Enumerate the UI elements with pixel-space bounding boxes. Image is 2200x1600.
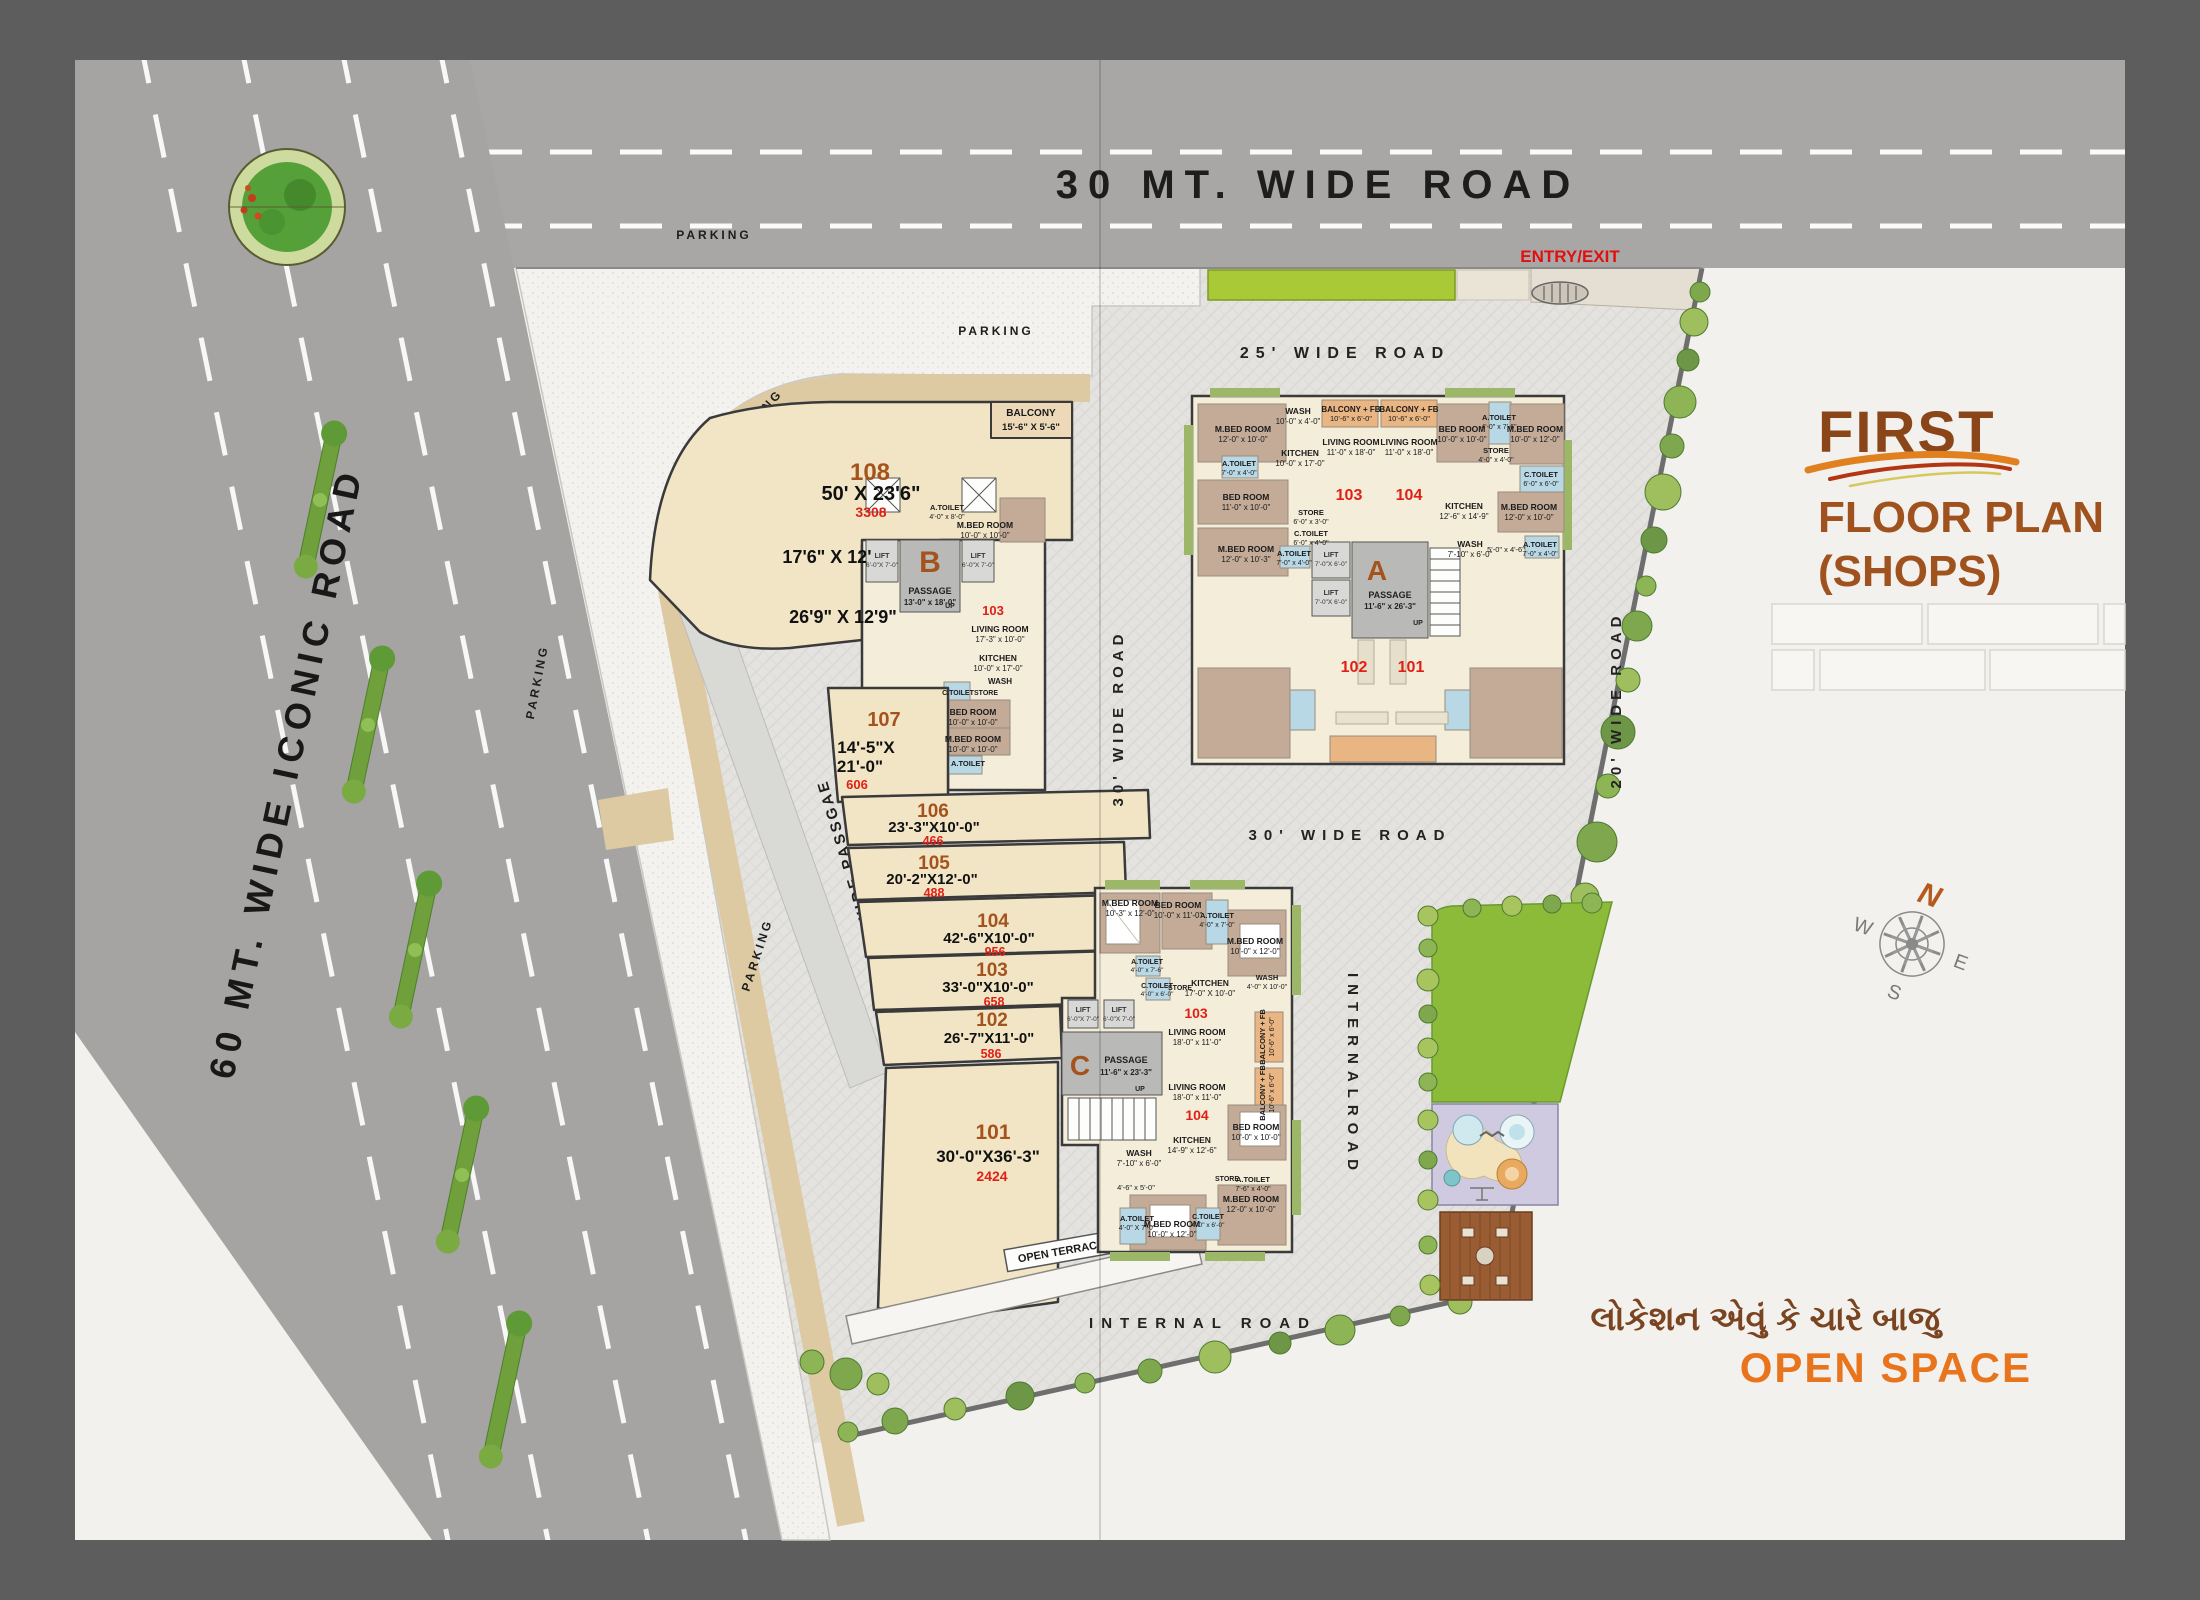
room-label: C.TOILET <box>1524 470 1558 479</box>
shop-106-area: 466 <box>923 834 944 848</box>
room-dim: 6'-0" x 3'-0" <box>1293 519 1329 526</box>
room-dim: 10'-0" x 10'-0" <box>960 531 1009 540</box>
room-label: BALCONY + FB <box>1379 405 1438 414</box>
room-label: LIVING ROOM <box>1168 1027 1225 1037</box>
shop-108-dim: 50' X 23'6" <box>821 483 920 505</box>
b-unit-103: 103 <box>982 603 1004 618</box>
room-dim: 10'-0" x 10'-0" <box>948 745 997 754</box>
c-unit-104: 104 <box>1185 1107 1209 1123</box>
shop-101-dim: 30'-0"X36'-3" <box>936 1147 1040 1166</box>
tagline-open-space: OPEN SPACE <box>1740 1344 2032 1391</box>
room-label: WASH <box>1285 406 1311 416</box>
road-30h-label: 30' WIDE ROAD <box>1249 827 1452 844</box>
pale-strip <box>1457 270 1529 300</box>
room-dim: 10'-0" x 17'-0" <box>1275 459 1324 468</box>
room-label: BED ROOM <box>1233 1122 1280 1132</box>
a-room-fill <box>1198 480 1288 524</box>
a-sofa <box>1336 712 1388 724</box>
a-toilet-fill <box>1290 690 1315 730</box>
room-label: KITCHEN <box>1445 501 1483 511</box>
room-label: C.TOILET <box>1294 529 1328 538</box>
room-label: M.BED ROOM <box>1102 898 1158 908</box>
site-plan-page: 30 MT. WIDE ROAD <box>0 0 2200 1600</box>
room-label: STORE <box>1168 985 1192 992</box>
room-dim: 4'-0" X 10'-0" <box>1247 984 1288 991</box>
shop-107-dim2: 21'-0" <box>837 757 883 776</box>
shop-102-area: 586 <box>981 1047 1002 1061</box>
room-dim: 4'-0" x 8'-0" <box>929 514 965 521</box>
room-dim: 12'-0" x 10'-3" <box>1221 555 1270 564</box>
room-label: M.BED ROOM <box>1501 502 1557 512</box>
room-label: A.TOILET <box>1236 1175 1270 1184</box>
a-up-label: UP <box>1413 620 1423 627</box>
room-dim: 4'-0" x 4'-0" <box>1478 457 1514 464</box>
b-lift1-dim: 6'-0"X 7'-0" <box>866 562 899 569</box>
room-dim: 12'-0" x 10'-0" <box>1504 513 1553 522</box>
room-dim: 12'-6" x 14'-9" <box>1439 512 1488 521</box>
shop-107-number: 107 <box>867 709 900 731</box>
road-20-label: 20' WIDE ROAD <box>1608 612 1625 789</box>
room-dim: 12'-0" x 10'-0" <box>1218 435 1267 444</box>
b-lift1-label: LIFT <box>875 553 890 560</box>
room-dim: 4'-0" x 6'-0" <box>1192 1222 1225 1229</box>
room-dim: 10'-0" x 12'-0" <box>1230 947 1279 956</box>
room-dim: 10'-0" x 12'-0" <box>1147 1230 1196 1239</box>
room-label: A.TOILET <box>951 759 985 768</box>
room-label: M.BED ROOM <box>1218 544 1274 554</box>
shop-108-number: 108 <box>850 459 890 486</box>
tagline-gujarati: લોકેશન એવું કે ચારે બાજુ <box>1591 1298 1944 1340</box>
lawn-strip <box>1208 270 1455 300</box>
room-label: STORE <box>974 690 998 697</box>
c-green-strip <box>1292 905 1301 995</box>
a-passage-label: PASSAGE <box>1368 590 1411 600</box>
shop-108-dim-b: 26'9" X 12'9" <box>789 607 897 627</box>
a-toilet-fill <box>1489 402 1511 444</box>
block-c-letter: C <box>1070 1050 1090 1081</box>
internal-road-h-label: INTERNAL ROAD <box>1089 1315 1317 1332</box>
room-dim: 14'-9" x 12'-6" <box>1167 1146 1216 1155</box>
room-label: M.BED ROOM <box>957 520 1013 530</box>
room-dim: 7'-6" x 4'-0" <box>1235 1186 1271 1193</box>
room-dim: 7'-10" x 6'-0" <box>1117 1159 1162 1168</box>
room-label: STORE <box>1298 508 1324 517</box>
c-lift1-label: LIFT <box>1076 1007 1091 1014</box>
room-dim: 11'-0" x 10'-0" <box>1222 503 1271 512</box>
room-label: A.TOILET <box>1523 540 1557 549</box>
c-up-label: UP <box>1135 1086 1145 1093</box>
room-label: M.BED ROOM <box>945 734 1001 744</box>
room-dim: 10'-0" x 17'-0" <box>973 664 1022 673</box>
room-label: WASH <box>1457 539 1483 549</box>
block-a-letter: A <box>1367 555 1387 586</box>
c-passage-label: PASSAGE <box>1104 1055 1147 1065</box>
a-lift2-dim: 7'-0"X 6'-0" <box>1315 599 1348 606</box>
room-dim: 7'-10" x 6'-0" <box>1448 550 1493 559</box>
a-unit-101: 101 <box>1398 659 1425 676</box>
room-dim: 6'-0" x 4'-0" <box>1293 540 1329 547</box>
room-dim: 10'-0" x 10'-0" <box>1231 1133 1280 1142</box>
a-lift1-dim: 7'-0"X 6'-0" <box>1315 561 1348 568</box>
entry-exit-label: ENTRY/EXIT <box>1520 247 1620 266</box>
a-green-strip-top2 <box>1445 388 1515 397</box>
room-label: A.TOILET <box>930 503 964 512</box>
a-balcony-bottom <box>1330 736 1436 762</box>
room-dim: 18'-0" x 11'-0" <box>1173 1093 1222 1102</box>
shop-104-number: 104 <box>977 911 1009 932</box>
shop-101-area: 2424 <box>976 1168 1007 1184</box>
balcony-dim: 15'-6" X 5'-6" <box>1002 422 1060 433</box>
c-green-strip <box>1110 1252 1170 1261</box>
a-green-strip-top1 <box>1210 388 1280 397</box>
room-dim: 7'-0" x 4'-0" <box>1276 560 1312 567</box>
shop-102-dim: 26'-7"X11'-0" <box>944 1030 1035 1047</box>
room-label: WASH <box>1126 1148 1152 1158</box>
room-dim: 5'-0" x 4'-6" <box>1487 545 1525 554</box>
shop-105-area: 488 <box>924 886 945 900</box>
parking-label-1: PARKING <box>676 228 751 242</box>
room-dim: 10'-0" x 12'-0" <box>1510 435 1559 444</box>
shop-103-number: 103 <box>976 960 1008 981</box>
c-lift1-dim: 6'-0"X 7'-0" <box>1067 1016 1100 1023</box>
room-label: C.TOILET <box>942 690 974 697</box>
garden-deck <box>1440 1212 1532 1300</box>
b-lift2-label: LIFT <box>971 553 986 560</box>
room-label: LIVING ROOM <box>1168 1082 1225 1092</box>
room-dim: 11'-0" x 18'-0" <box>1385 448 1434 457</box>
room-label: KITCHEN <box>979 653 1017 663</box>
room-label: M.BED ROOM <box>1507 424 1563 434</box>
c-lift2-label: LIFT <box>1112 1007 1127 1014</box>
room-dim: 10'-6" x 6'-0" <box>1388 414 1430 423</box>
room-dim: 10'-0" x 10'-0" <box>948 718 997 727</box>
room-label: STORE <box>1483 446 1509 455</box>
a-lift-2 <box>1312 580 1350 616</box>
room-dim: 7'-0" x 4'-0" <box>1221 470 1257 477</box>
shop-107-dim: 14'-5"X <box>837 738 895 757</box>
c-green-strip <box>1190 880 1245 889</box>
room-label: BED ROOM <box>1439 424 1486 434</box>
a-room-fill <box>1498 492 1564 532</box>
a-unit-104: 104 <box>1396 487 1423 504</box>
room-dim: 10'-6" x 6'-0" <box>1269 1017 1276 1057</box>
room-label: BED ROOM <box>1223 492 1270 502</box>
room-dim: 4'-0" x 7'-6" <box>1131 967 1164 974</box>
a-lift1-label: LIFT <box>1324 552 1339 559</box>
shop-104-area: 956 <box>985 945 1006 959</box>
shop-108-dim-a: 17'6" X 12' <box>782 547 871 567</box>
room-label: A.TOILET <box>1277 549 1311 558</box>
room-label: BED ROOM <box>950 707 997 717</box>
room-dim: 11'-0" x 18'-0" <box>1327 448 1376 457</box>
room-label: WASH <box>988 677 1012 686</box>
block-b-letter: B <box>919 546 941 579</box>
room-dim: 10'-0" x 11'-0" <box>1154 911 1203 920</box>
b-lift-2 <box>962 540 994 582</box>
room-label: BALCONY + FB <box>1258 1065 1267 1121</box>
shop-102-number: 102 <box>976 1010 1008 1031</box>
room-dim: 7'-0" x 4'-0" <box>1522 551 1558 558</box>
room-dim: 4'-0" x 6'-0" <box>1141 991 1174 998</box>
b-passage-label: PASSAGE <box>908 586 951 596</box>
room-label: WASH <box>1256 973 1279 982</box>
a-green-strip-left <box>1184 425 1193 555</box>
internal-road-v-label: INTERNALROAD <box>1344 973 1361 1177</box>
a-unit-103: 103 <box>1336 487 1363 504</box>
a-toilet-fill <box>1445 690 1470 730</box>
room-label: LIVING ROOM <box>1380 437 1437 447</box>
room-label: BED ROOM <box>1155 900 1202 910</box>
room-label: M.BED ROOM <box>1223 1194 1279 1204</box>
a-lift-1 <box>1312 542 1350 578</box>
c-lift2-dim: 6'-0"X 7'-0" <box>1103 1016 1136 1023</box>
room-label: A.TOILET <box>1131 959 1163 966</box>
shop-103-dim: 33'-0"X10'-0" <box>942 979 1033 996</box>
parking-label-2: PARKING <box>958 324 1033 338</box>
c-green-strip <box>1205 1252 1265 1261</box>
balcony-label: BALCONY <box>1006 408 1056 419</box>
room-dim: 4'-0" x 7'-0" <box>1199 922 1235 929</box>
a-unit-102: 102 <box>1341 659 1368 676</box>
shop-103-area: 658 <box>984 995 1005 1009</box>
c-green-strip <box>1105 880 1160 889</box>
shop-107-area: 606 <box>846 777 868 792</box>
road-25-label: 25' WIDE ROAD <box>1240 345 1450 362</box>
room-dim: 17'-0" X 10'-0" <box>1185 989 1236 998</box>
room-label: C.TOILET <box>1192 1214 1224 1221</box>
c-passage-dim: 11'-6" x 23'-3" <box>1100 1068 1152 1077</box>
b-lift2-dim: 6'-0"X 7'-0" <box>962 562 995 569</box>
shop-108-area: 3308 <box>855 504 886 520</box>
room-dim: 10'-6" x 6'-0" <box>1269 1073 1276 1113</box>
room-label: LIVING ROOM <box>1322 437 1379 447</box>
title-line3: (SHOPS) <box>1818 547 2001 596</box>
entry-gate <box>1532 282 1588 304</box>
room-dim: 10'-0" x 10'-0" <box>1437 435 1486 444</box>
room-label: BALCONY + FB <box>1321 405 1380 414</box>
floor-plan-canvas: 30 MT. WIDE ROAD <box>0 0 2200 1600</box>
room-label: BALCONY + FB <box>1258 1009 1267 1065</box>
a-room-fill <box>1198 668 1290 758</box>
c-unit-103: 103 <box>1184 1005 1208 1021</box>
title-line2: FLOOR PLAN <box>1818 493 2104 542</box>
shop-106-parcel <box>842 790 1150 845</box>
room-dim: 12'-0" x 10'-0" <box>1226 1205 1275 1214</box>
room-label: A.TOILET <box>1222 459 1256 468</box>
room-dim: 6'-0" x 6'-0" <box>1523 481 1559 488</box>
a-room-fill <box>1470 668 1562 758</box>
b-up-label: UP <box>945 603 955 610</box>
a-lift2-label: LIFT <box>1324 590 1339 597</box>
room-label: A.TOILET <box>1200 911 1234 920</box>
room-label: M.BED ROOM <box>1227 936 1283 946</box>
c-lift-2 <box>1104 1000 1134 1028</box>
a-sofa <box>1396 712 1448 724</box>
room-label: KITCHEN <box>1191 978 1229 988</box>
c-green-strip <box>1292 1120 1301 1215</box>
room-dim: 10'-3" x 12'-0" <box>1105 909 1154 918</box>
room-dim: 4'-6" x 5'-0" <box>1117 1183 1155 1192</box>
top-road-label: 30 MT. WIDE ROAD <box>1056 163 1580 207</box>
a-room-fill <box>1510 404 1564 464</box>
room-dim: 10'-0" x 4'-0" <box>1276 417 1321 426</box>
c-lift-1 <box>1068 1000 1098 1028</box>
room-dim: 18'-0" x 11'-0" <box>1173 1038 1222 1047</box>
roundabout-tree <box>229 149 345 265</box>
room-dim: 10'-6" x 6'-0" <box>1330 414 1372 423</box>
shop-101-number: 101 <box>975 1121 1010 1144</box>
road-30v-label: 30' WIDE ROAD <box>1110 630 1127 807</box>
room-label: KITCHEN <box>1173 1135 1211 1145</box>
room-dim: 17'-3" x 10'-0" <box>975 635 1024 644</box>
a-stair <box>1430 548 1460 636</box>
a-passage-dim: 11'-6" x 26'-3" <box>1364 602 1416 611</box>
room-label: LIVING ROOM <box>971 624 1028 634</box>
room-label: KITCHEN <box>1281 448 1319 458</box>
c-stair <box>1068 1098 1156 1140</box>
room-label: M.BED ROOM <box>1215 424 1271 434</box>
room-label: A.TOILET <box>1482 413 1516 422</box>
